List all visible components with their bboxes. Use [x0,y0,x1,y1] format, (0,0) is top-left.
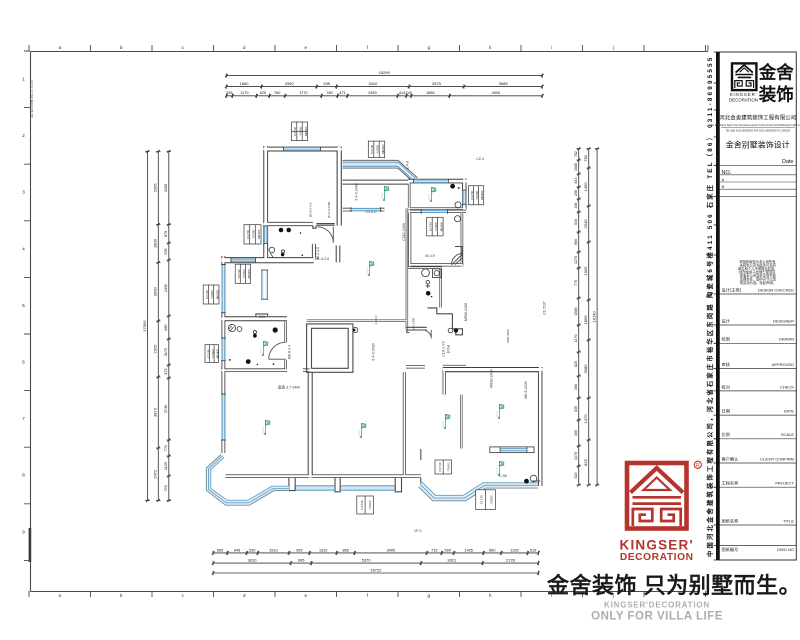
svg-text:DECORATION: DECORATION [729,97,758,102]
svg-text:3410: 3410 [368,81,378,86]
svg-text:A2 420x594 JS-01 1:100: A2 420x594 JS-01 1:100 [30,80,34,117]
svg-text:TITLE: TITLE [783,518,794,523]
svg-text:4505: 4505 [492,91,500,95]
svg-text:C1740: C1740 [206,349,210,358]
svg-text:590: 590 [445,548,451,552]
svg-text:Y2400: Y2400 [299,127,303,136]
svg-text:DESIGNER: DESIGNER [773,318,794,323]
svg-text:PROJECT: PROJECT [775,481,794,486]
svg-text:M0.9-2.4: M0.9-2.4 [288,345,292,359]
svg-text:i: i [551,45,552,50]
svg-text:875: 875 [164,231,168,237]
svg-text:河北金舍建筑装饰工程有限公司: 河北金舍建筑装饰工程有限公司 [719,114,796,122]
svg-text:530: 530 [574,219,578,225]
svg-text:Y2400: Y2400 [211,349,215,358]
svg-text:782: 782 [583,154,588,161]
svg-text:R: R [696,463,700,469]
svg-text:C1740: C1740 [370,144,374,153]
svg-text:中国河北金舍建筑装饰工程有限公司，河北省石家庄市裕华区东岗路: 中国河北金舍建筑装饰工程有限公司，河北省石家庄市裕华区东岗路 陶瓷城6号楼411… [705,56,714,557]
svg-text:C1740: C1740 [480,495,484,504]
svg-text:B: B [722,184,725,189]
svg-text:C1740: C1740 [293,126,297,135]
svg-text:SCALE: SCALE [781,432,794,437]
svg-text:A: A [722,177,725,182]
svg-text:2640: 2640 [583,219,588,229]
svg-text:1460: 1460 [583,182,588,192]
svg-text:366: 366 [574,384,578,390]
svg-text:515: 515 [530,548,536,552]
svg-text:DWG.NO: DWG.NO [777,547,794,552]
svg-text:900: 900 [574,239,578,245]
svg-text:M0900: M0900 [257,229,261,239]
svg-text:图纸名称: 图纸名称 [722,517,739,524]
svg-text:M0900: M0900 [439,222,443,232]
svg-text:Y2400: Y2400 [376,145,380,154]
svg-text:995: 995 [296,548,302,552]
svg-text:3873: 3873 [153,407,158,417]
svg-text:825: 825 [574,361,578,367]
svg-text:Y2400: Y2400 [475,190,479,199]
svg-text:456: 456 [574,203,578,209]
svg-text:3170: 3170 [164,348,168,356]
svg-text:3680: 3680 [583,364,588,374]
svg-text:C1.8-2.4-0: C1.8-2.4-0 [442,341,446,356]
svg-text:APPROVED: APPROVED [772,362,794,367]
svg-text:客户确认: 客户确认 [722,455,740,462]
svg-text:M0900: M0900 [304,126,308,136]
svg-text:825: 825 [583,458,588,465]
svg-text:703: 703 [164,485,168,491]
svg-text:17056: 17056 [142,320,147,332]
svg-text:2472: 2472 [153,469,158,479]
svg-text:1856: 1856 [583,315,588,325]
svg-text:1.4-0: 1.4-0 [406,161,410,169]
svg-text:2F-0.9-2400: 2F-0.9-2400 [327,201,331,218]
svg-text:Y2400: Y2400 [242,269,246,278]
svg-text:C1740: C1740 [470,190,474,199]
svg-text:C90: C90 [259,315,266,319]
svg-text:M0.9-2.4-0: M0.9-2.4-0 [309,202,313,217]
svg-text:1F-C: 1F-C [414,529,422,533]
svg-text:1685: 1685 [574,163,578,171]
svg-text:1858: 1858 [426,91,434,95]
svg-text:DRAWN: DRAWN [779,337,794,342]
svg-text:1270: 1270 [574,256,578,264]
svg-text:530: 530 [249,548,255,552]
svg-text:CHECK: CHECK [780,384,794,389]
svg-text:KINGSER'DECORATION: KINGSER'DECORATION [604,601,710,610]
svg-text:0 1 2: 0 1 2 [261,427,265,433]
svg-text:C1.7107: C1.7107 [543,301,547,315]
svg-text:0 1 2: 0 1 2 [259,348,263,354]
svg-text:1F2全: 1F2全 [446,344,451,353]
svg-text:3021: 3021 [447,558,457,563]
svg-text:782: 782 [574,151,578,157]
svg-text:面宽 3.7 2400: 面宽 3.7 2400 [278,385,300,390]
svg-text:M0900: M0900 [215,289,219,299]
svg-text:0 1 2: 0 1 2 [495,468,499,474]
svg-text:770: 770 [164,445,168,451]
svg-text:装饰: 装饰 [758,84,794,104]
svg-text:843: 843 [574,178,578,184]
svg-text:C1740: C1740 [246,229,250,238]
svg-text:2395: 2395 [153,183,158,193]
svg-text:M-0.9: M-0.9 [425,254,434,258]
svg-text:KINGSER': KINGSER' [730,92,758,97]
svg-text:金舍装饰 只为别墅而生。: 金舍装饰 只为别墅而生。 [546,573,800,598]
svg-text:M910-2400: M910-2400 [490,369,494,387]
svg-text:475: 475 [164,368,168,374]
svg-text:ONLY FOR VILLA LIFE: ONLY FOR VILLA LIFE [591,611,723,623]
svg-text:3000: 3000 [153,287,158,297]
svg-text:1109: 1109 [164,462,168,470]
svg-text:2085: 2085 [164,184,168,192]
svg-text:685: 685 [217,548,223,552]
svg-text:0 1 2: 0 1 2 [380,193,384,199]
svg-text:设计(主案): 设计(主案) [722,286,742,293]
svg-text:3495: 3495 [387,548,395,552]
svg-text:1470: 1470 [574,335,578,343]
svg-text:CLIENT CONFIRM: CLIENT CONFIRM [760,456,794,461]
svg-text:770: 770 [574,280,578,286]
svg-text:TEL:(86) 0311-86995555 FAX:03: TEL:(86) 0311-86995555 FAX:0311-86995556… [725,130,790,133]
svg-text:1470: 1470 [583,414,588,424]
svg-text:2575: 2575 [432,81,442,86]
svg-text:绘制: 绘制 [722,336,730,343]
svg-text:Y2400: Y2400 [210,290,214,299]
svg-text:295: 295 [226,91,232,95]
svg-text:Y2400: Y2400 [434,222,438,231]
svg-text:审核: 审核 [722,361,731,368]
svg-text:M0.9-2400: M0.9-2400 [524,381,528,398]
svg-text:1510: 1510 [269,548,277,552]
svg-text:0 1 2: 0 1 2 [365,268,369,274]
svg-text:2325: 2325 [153,344,158,354]
svg-text:1170: 1170 [240,91,248,95]
svg-text:DECORATION: DECORATION [620,552,694,563]
svg-text:Y2400: Y2400 [252,230,256,239]
svg-text:995: 995 [298,558,305,563]
svg-text:KINGSER': KINGSER' [620,538,694,553]
svg-text:15722: 15722 [370,567,382,572]
svg-text:240: 240 [406,91,412,95]
svg-text:0 1 2: 0 1 2 [495,411,499,417]
svg-text:0 1 2: 0 1 2 [357,430,361,436]
svg-text:工程名称: 工程名称 [722,480,739,487]
svg-text:C1740: C1740 [237,269,241,278]
svg-text:Y2400: Y2400 [490,495,494,504]
svg-text:414: 414 [399,91,405,95]
svg-text:5370: 5370 [362,558,372,563]
svg-text:865: 865 [343,548,349,552]
svg-text:2.0 4.0: 2.0 4.0 [374,315,378,324]
svg-text:DESIGN CHECKED: DESIGN CHECKED [758,287,794,292]
svg-text:3685: 3685 [499,81,509,86]
svg-text:M0900: M0900 [381,144,385,154]
svg-text:DATE: DATE [784,409,795,414]
svg-text:2590: 2590 [285,81,295,86]
svg-text:1800: 1800 [153,238,158,248]
svg-text:C1740: C1740 [360,500,364,509]
svg-text:15290: 15290 [379,70,391,75]
svg-text:M0900: M0900 [480,190,484,200]
svg-text:M1.4-2.0: M1.4-2.0 [315,257,329,261]
svg-text:M900-2400: M900-2400 [464,303,468,321]
svg-text:945: 945 [234,548,240,552]
svg-text:1905: 1905 [583,266,588,276]
svg-text:2430: 2430 [164,284,168,292]
svg-text:16140: 16140 [591,311,596,323]
svg-text:设计: 设计 [722,317,730,324]
svg-text:Y2400: Y2400 [446,462,450,471]
svg-text:2.4-0 2400: 2.4-0 2400 [355,183,359,200]
svg-text:471: 471 [339,91,345,95]
svg-text:比例: 比例 [722,431,730,438]
svg-text:2726: 2726 [506,558,516,563]
svg-text:240 2400: 240 2400 [412,317,416,330]
svg-text:935: 935 [323,81,330,86]
svg-text:1470: 1470 [574,452,578,460]
svg-text:M90-2400: M90-2400 [506,329,510,343]
svg-text:C2.4-0: C2.4-0 [366,210,377,214]
svg-text:5.4-0 2400: 5.4-0 2400 [372,343,376,360]
svg-text:206: 206 [574,190,578,196]
svg-text:场实测为准。特此声明。: 场实测为准。特此声明。 [740,280,776,285]
svg-text:300: 300 [574,430,578,436]
svg-text:No.6 Building TaoCi City DongG: No.6 Building TaoCi City DongGang Road Y… [711,124,800,127]
svg-text:0 1 2: 0 1 2 [441,421,445,427]
svg-text:0 1 2: 0 1 2 [427,194,431,200]
svg-text:3810: 3810 [248,558,258,563]
svg-text:图纸编号: 图纸编号 [722,546,739,553]
svg-text:1856: 1856 [574,308,578,316]
svg-text:C110-2400: C110-2400 [402,223,406,241]
svg-text:1770: 1770 [299,91,307,95]
svg-text:j: j [612,45,614,50]
svg-text:Y2400: Y2400 [368,500,372,509]
svg-text:680: 680 [164,324,168,330]
svg-text:1425: 1425 [464,548,472,552]
svg-text:Date: Date [782,159,794,165]
svg-text:715: 715 [431,548,437,552]
svg-text:780: 780 [326,91,332,95]
svg-text:C1740: C1740 [428,222,432,231]
svg-text:校对: 校对 [722,383,730,390]
svg-text:860: 860 [489,548,495,552]
svg-text:C1740: C1740 [438,462,442,471]
svg-text:金舍: 金舍 [758,63,794,83]
svg-text:C2.4: C2.4 [476,157,484,161]
svg-text:2450: 2450 [368,91,376,95]
svg-text:935: 935 [164,248,168,254]
svg-text:金舍别墅装饰设计: 金舍别墅装饰设计 [726,140,790,150]
svg-text:835: 835 [574,406,578,412]
svg-text:M0900: M0900 [215,349,219,359]
svg-text:C1740: C1740 [205,290,209,299]
svg-text:520: 520 [574,473,578,479]
svg-text:1660: 1660 [240,81,250,86]
svg-text:625: 625 [260,91,266,95]
svg-text:3745: 3745 [164,405,168,413]
svg-text:1310: 1310 [319,548,327,552]
svg-text:C-90: C-90 [499,474,507,478]
svg-text:1283: 1283 [510,548,518,552]
svg-text:760: 760 [274,91,280,95]
svg-text:M0900: M0900 [247,269,251,279]
